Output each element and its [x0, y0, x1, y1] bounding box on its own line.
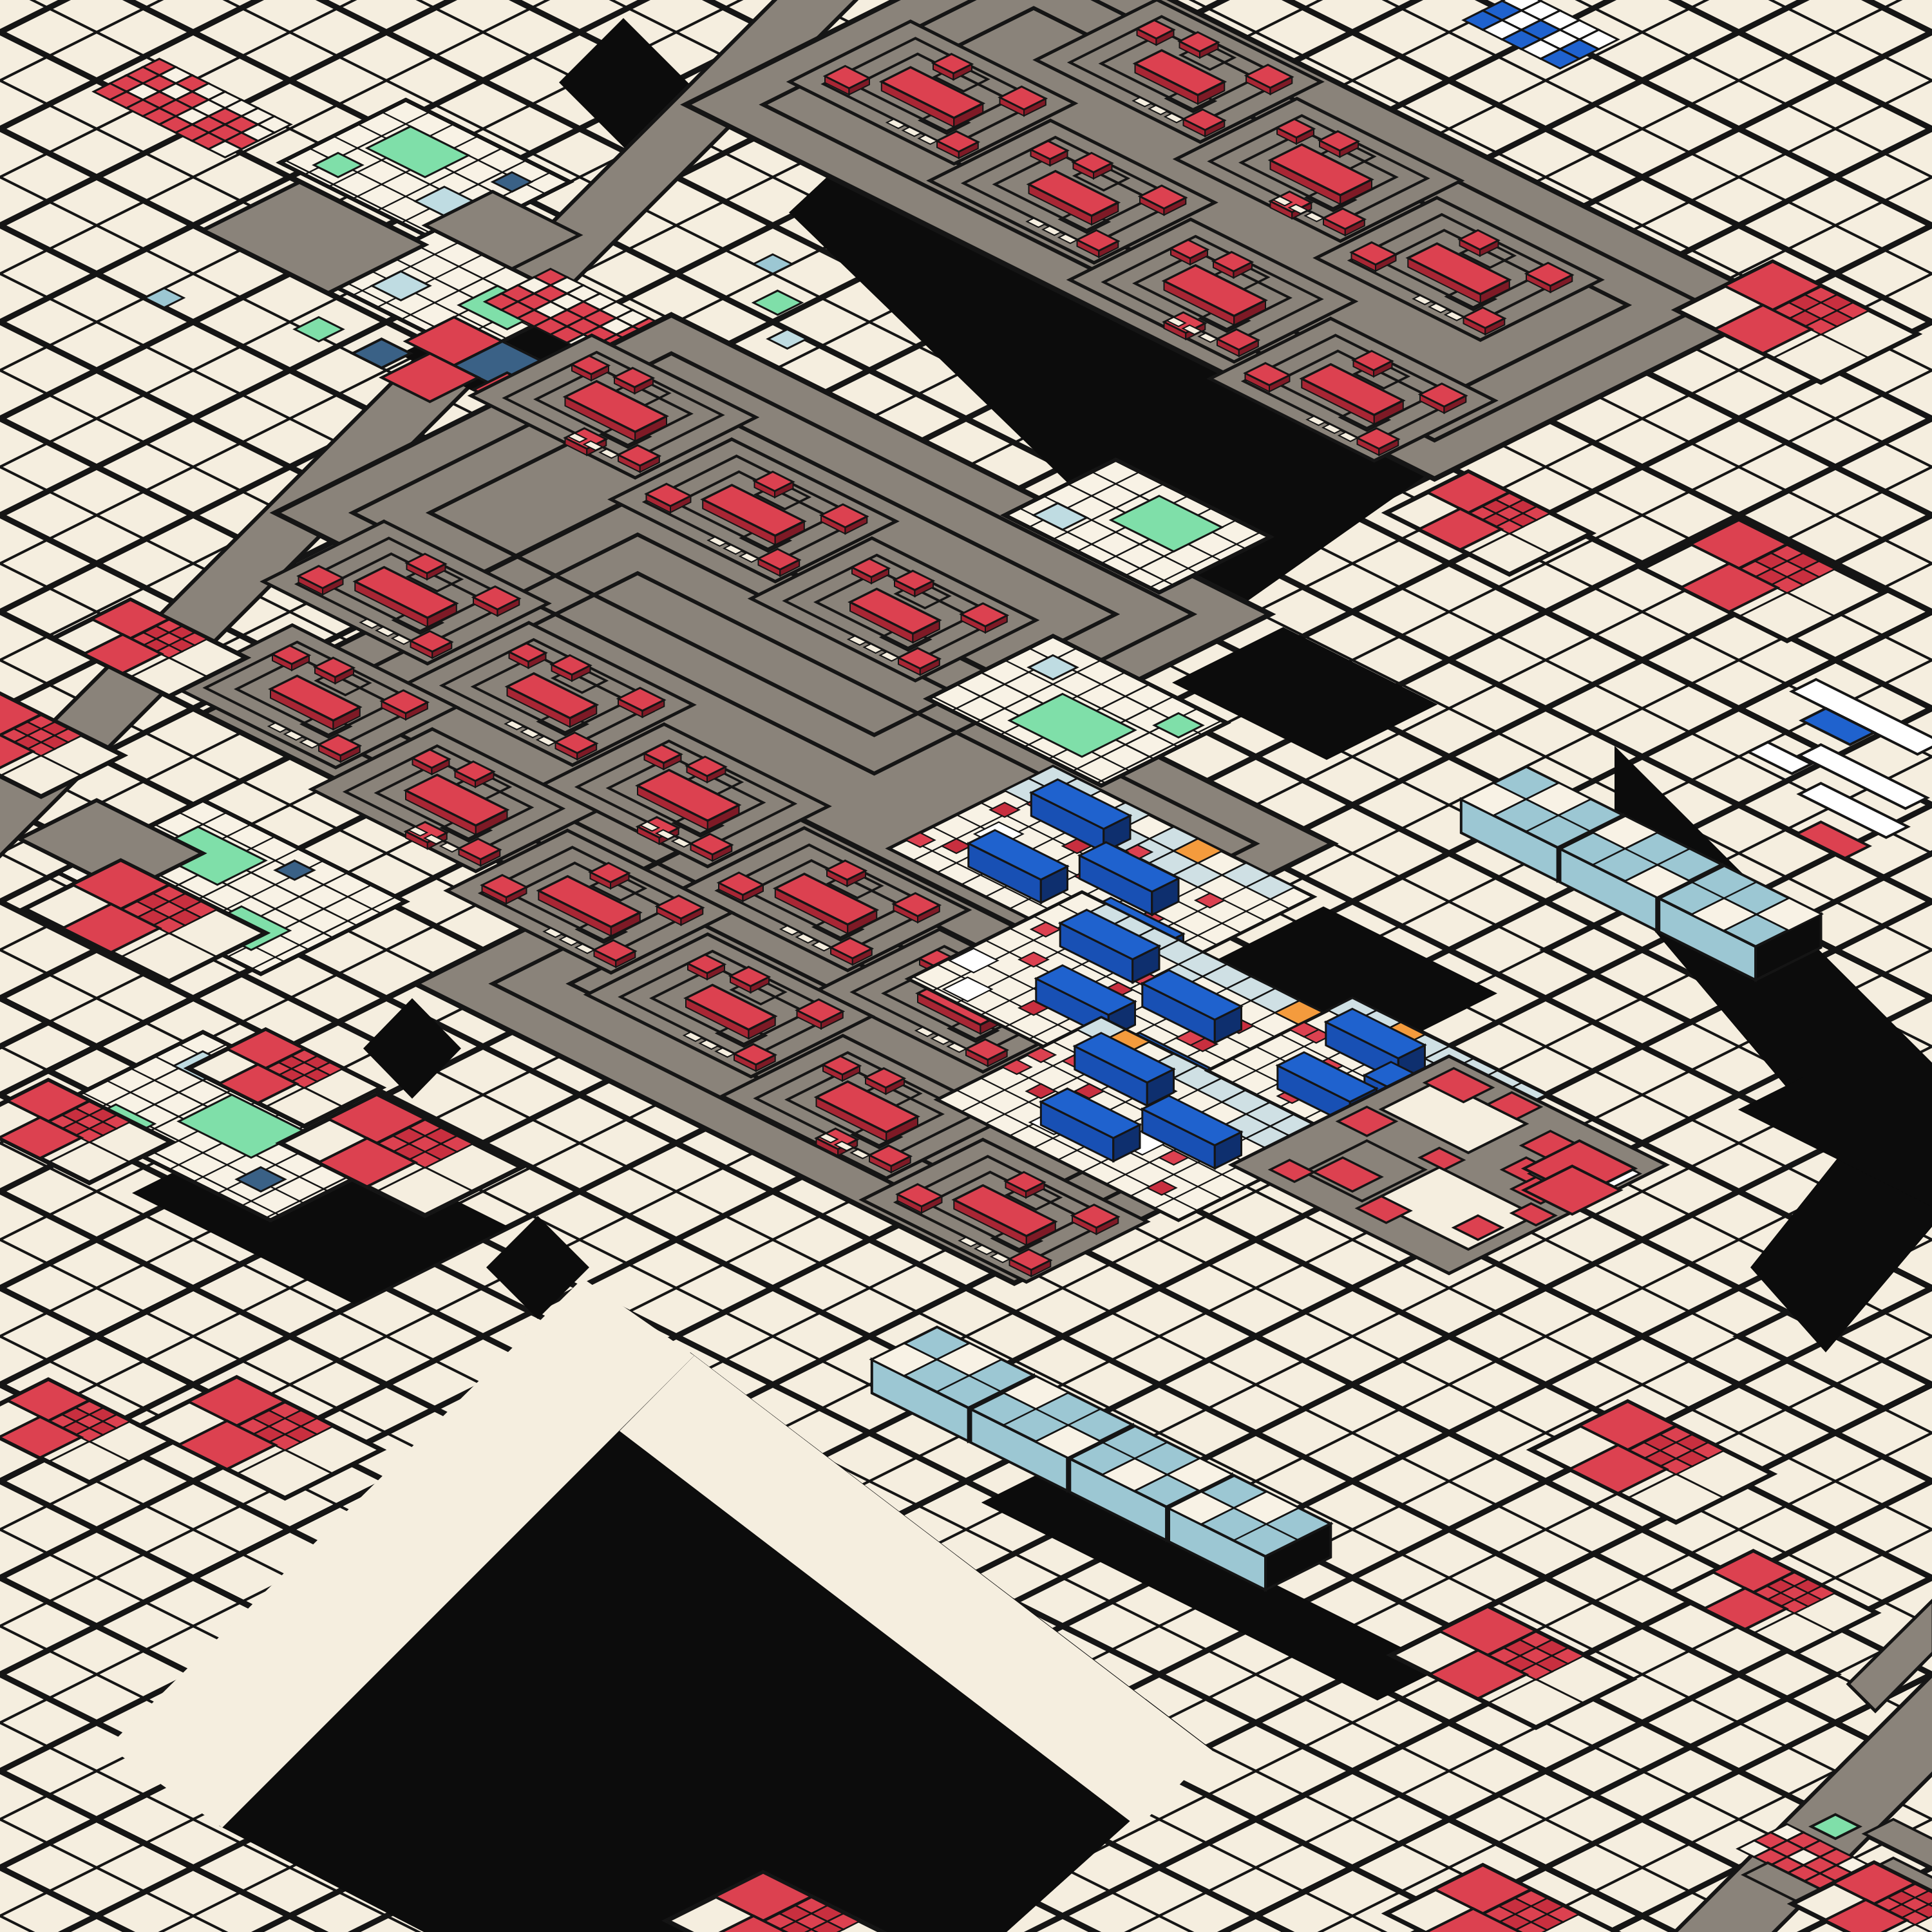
artwork-canvas	[0, 0, 1932, 1932]
generative-isometric-artwork	[0, 0, 1932, 1932]
